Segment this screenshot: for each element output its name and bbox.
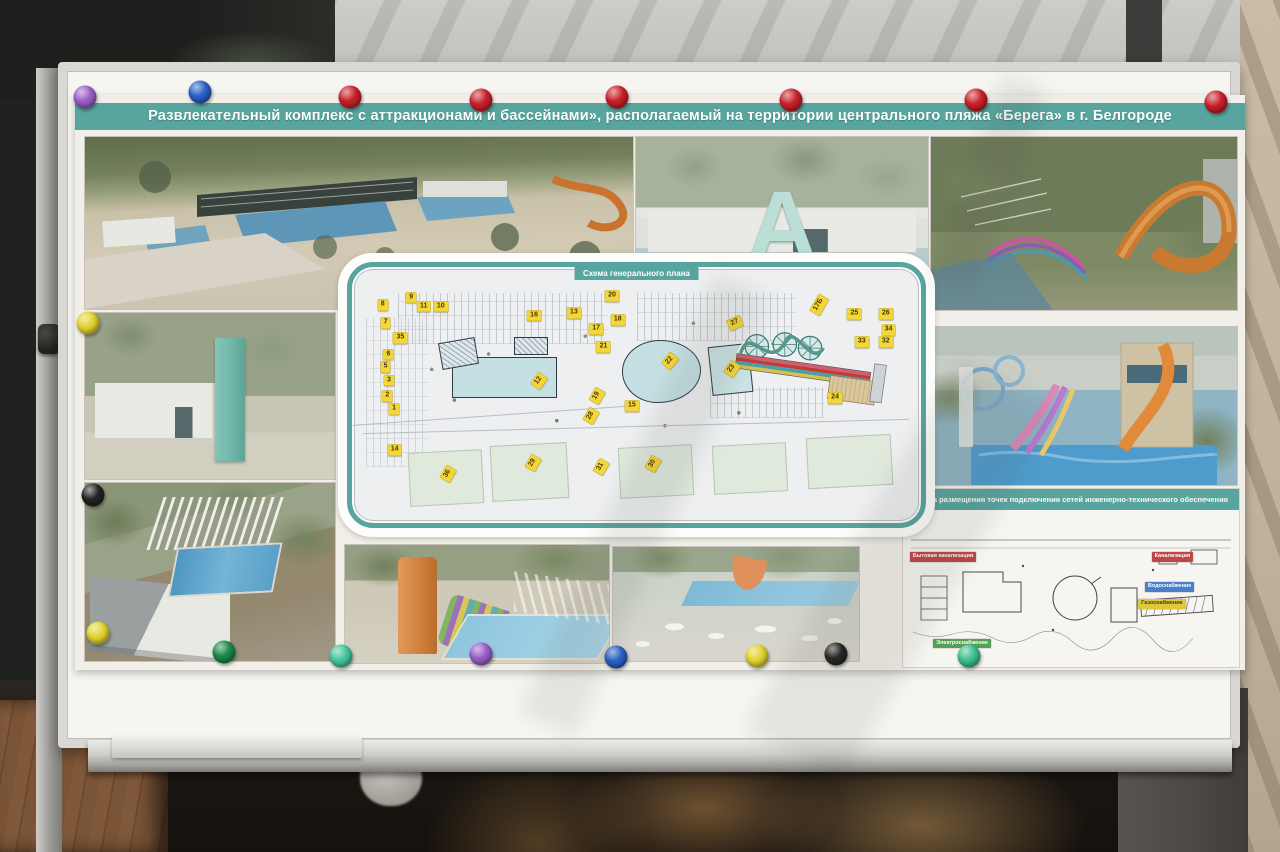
- plan-marker-18: 18: [611, 315, 625, 326]
- plan-marker-6: 6: [383, 349, 393, 360]
- plan-marker-2: 2: [382, 391, 392, 402]
- render-slides-forest: [931, 137, 1237, 310]
- project-poster: Развлекательный комплекс с аттракционами…: [75, 95, 1245, 670]
- plan-marker-33: 33: [855, 336, 869, 347]
- plan-marker-10: 10: [434, 301, 448, 312]
- eng-legend-item-1: Электроснабжение: [933, 639, 991, 649]
- engineering-scheme: Схема размещения точек подключения сетей…: [903, 489, 1239, 667]
- plan-marker-5: 5: [381, 362, 391, 373]
- window-mullion: [1126, 0, 1162, 64]
- forest-slide-graphic: [931, 137, 1237, 310]
- eng-legend-item-4: Газоснабжение: [1138, 599, 1185, 609]
- kids-pool: [444, 616, 609, 658]
- plan-marker-13: 13: [567, 308, 581, 319]
- poster-title: Развлекательный комплекс с аттракционами…: [75, 103, 1245, 130]
- plan-marker-14: 14: [388, 445, 402, 456]
- terrace-slide: [729, 556, 768, 593]
- plan-marker-8: 8: [378, 300, 388, 311]
- plan-marker-9: 9: [406, 292, 416, 303]
- plan-marker-24: 24: [828, 392, 842, 403]
- render-cafe-terrace: [613, 547, 859, 661]
- plan-marker-1: 1: [389, 404, 399, 415]
- plan-marker-26: 26: [879, 308, 893, 319]
- plan-marker-34: 34: [882, 325, 896, 336]
- general-plan-title: Схема генерального плана: [574, 267, 699, 280]
- plan-marker-20: 20: [605, 291, 619, 302]
- plan-marker-21: 21: [597, 342, 611, 353]
- plan-marker-17: 17: [589, 324, 603, 335]
- photo-scene: Развлекательный комплекс с аттракционами…: [0, 0, 1280, 852]
- plan-marker-35: 35: [393, 333, 407, 344]
- engineering-drawing: Бытовая канализацияЭлектроснабжениеКанал…: [903, 510, 1239, 667]
- render-waterpark-slides: [931, 327, 1237, 485]
- waterpark-slides-graphic: [931, 327, 1237, 485]
- engineering-scheme-title: Схема размещения точек подключения сетей…: [903, 489, 1239, 510]
- pool-building: [90, 575, 230, 661]
- general-plan: Схема генерального плана 891110735653211…: [338, 253, 935, 537]
- plan-marker-32: 32: [879, 336, 893, 347]
- plan-marker-7: 7: [381, 317, 391, 328]
- render-pool-orange-slide: [345, 545, 609, 663]
- slide-tower: [398, 557, 438, 654]
- plan-marker-25: 25: [848, 308, 862, 319]
- general-plan-body: Схема генерального плана 891110735653211…: [347, 262, 926, 528]
- plan-marker-3: 3: [384, 375, 394, 386]
- plan-marker-15: 15: [625, 400, 639, 411]
- stand-knob: [38, 324, 60, 354]
- terrace-pool: [681, 581, 859, 606]
- eng-legend-item-0: Бытовая канализация: [910, 552, 977, 562]
- marker-tray-bracket: [112, 736, 362, 758]
- render-pylon-building: [85, 313, 335, 479]
- eng-legend-item-3: Водоснабжение: [1145, 582, 1194, 592]
- plan-marker-11: 11: [417, 301, 430, 312]
- plan-marker-16: 16: [527, 310, 541, 321]
- eng-legend-item-2: Канализация: [1152, 552, 1193, 562]
- render-pool-pergola: [85, 483, 335, 661]
